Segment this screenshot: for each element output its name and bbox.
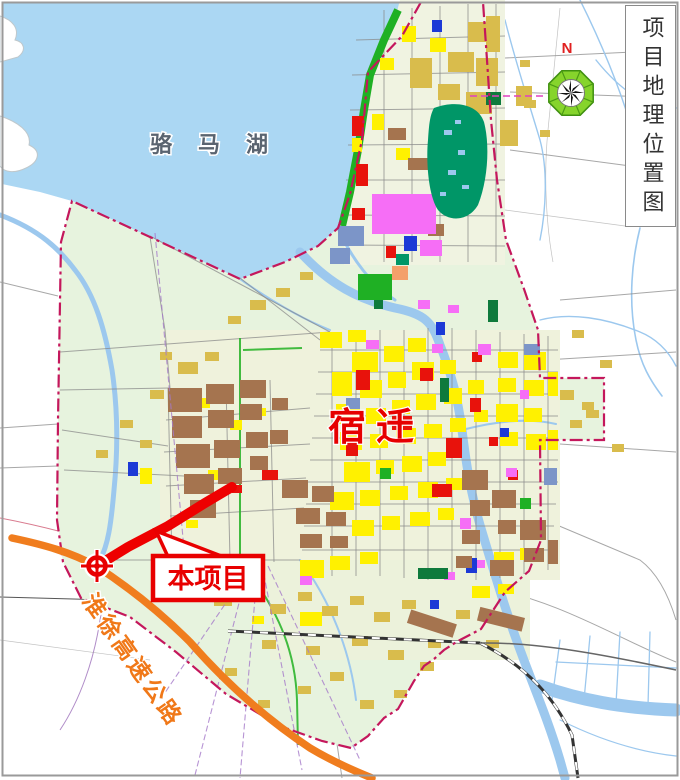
map-canvas[interactable]: 本项目 骆马湖 宿迁 淮徐高速公路 N <box>0 0 680 780</box>
callout-label: 本项目 <box>168 564 249 594</box>
page-title: 项目地理位置图 <box>640 16 662 219</box>
lake-label: 骆马湖 <box>150 132 294 157</box>
city-label: 宿迁 <box>328 407 424 449</box>
title-box: 项目地理位置图 <box>625 5 676 227</box>
map-figure: 本项目 骆马湖 宿迁 淮徐高速公路 N 项目地理位置图 <box>0 0 680 780</box>
compass-north-label: N <box>562 40 573 57</box>
